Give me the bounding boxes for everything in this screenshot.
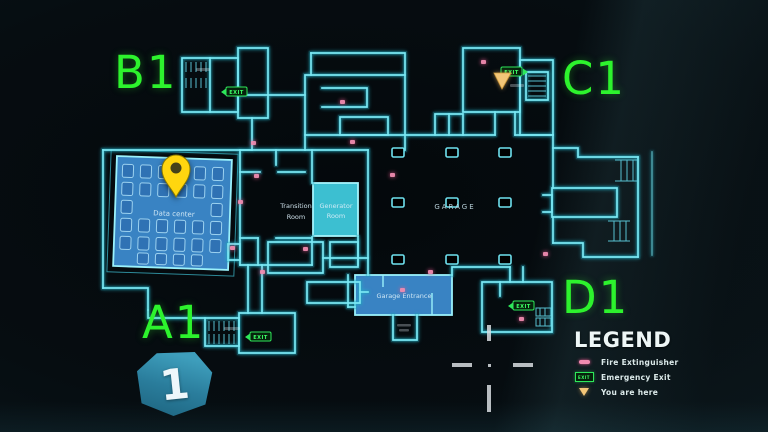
storage-shelves-c1: [528, 76, 546, 96]
room-generator: Generator Room: [313, 183, 358, 236]
generator-room-label-line1: Generator: [319, 202, 352, 210]
generator-room-label-line2: Room: [327, 212, 346, 220]
storage-shelves-b1: [186, 62, 206, 88]
you-are-here-icon: [494, 73, 511, 89]
storage-shelves-a1: [209, 321, 234, 344]
transition-room-label-line2: Room: [287, 213, 306, 221]
legend-title: LEGEND: [574, 328, 744, 352]
quadrant-label-a1: A1: [142, 300, 205, 345]
legend-item-emergency-exit: EXIT Emergency Exit: [574, 372, 744, 382]
legend-item-label: You are here: [601, 388, 658, 397]
legend-item-label: Emergency Exit: [601, 373, 671, 382]
transition-room-label-line1: Transition: [279, 202, 311, 210]
exit-badge-text: EXIT: [253, 335, 268, 341]
legend-item-fire-extinguisher: Fire Extinguisher: [574, 357, 744, 367]
data-center-label: Data center: [153, 209, 195, 218]
east-stairs: [608, 160, 637, 241]
game-map-screen: Data center Generator Room Garage Entran…: [0, 0, 768, 432]
legend-item-you-are-here: You are here: [574, 387, 744, 397]
exit-badge-text: EXIT: [229, 90, 244, 96]
storage-shelves-d1: [536, 308, 551, 326]
emergency-exit-badge-a1: EXIT: [245, 332, 271, 341]
exit-badge-text: EXIT: [516, 304, 531, 310]
quadrant-label-c1: C1: [562, 56, 626, 101]
crosshair-marker: [452, 325, 533, 412]
room-garage-entrance: Garage Entrance: [355, 275, 452, 315]
you-are-here-icon: [574, 388, 594, 396]
fire-extinguisher-icon: [574, 360, 594, 364]
floor-number: 1: [158, 358, 192, 410]
quadrant-label-d1: D1: [562, 275, 629, 320]
garage-entrance-label: Garage Entrance: [377, 292, 432, 300]
legend-panel: LEGEND Fire Extinguisher EXIT Emergency …: [574, 328, 744, 397]
legend-item-label: Fire Extinguisher: [601, 358, 679, 367]
emergency-exit-badge-d1: EXIT: [508, 301, 534, 310]
emergency-exit-badge-b1: EXIT: [221, 87, 247, 96]
garage-label: GARAGE: [434, 203, 475, 211]
emergency-exit-icon: EXIT: [574, 372, 594, 382]
quadrant-label-b1: B1: [114, 50, 178, 95]
